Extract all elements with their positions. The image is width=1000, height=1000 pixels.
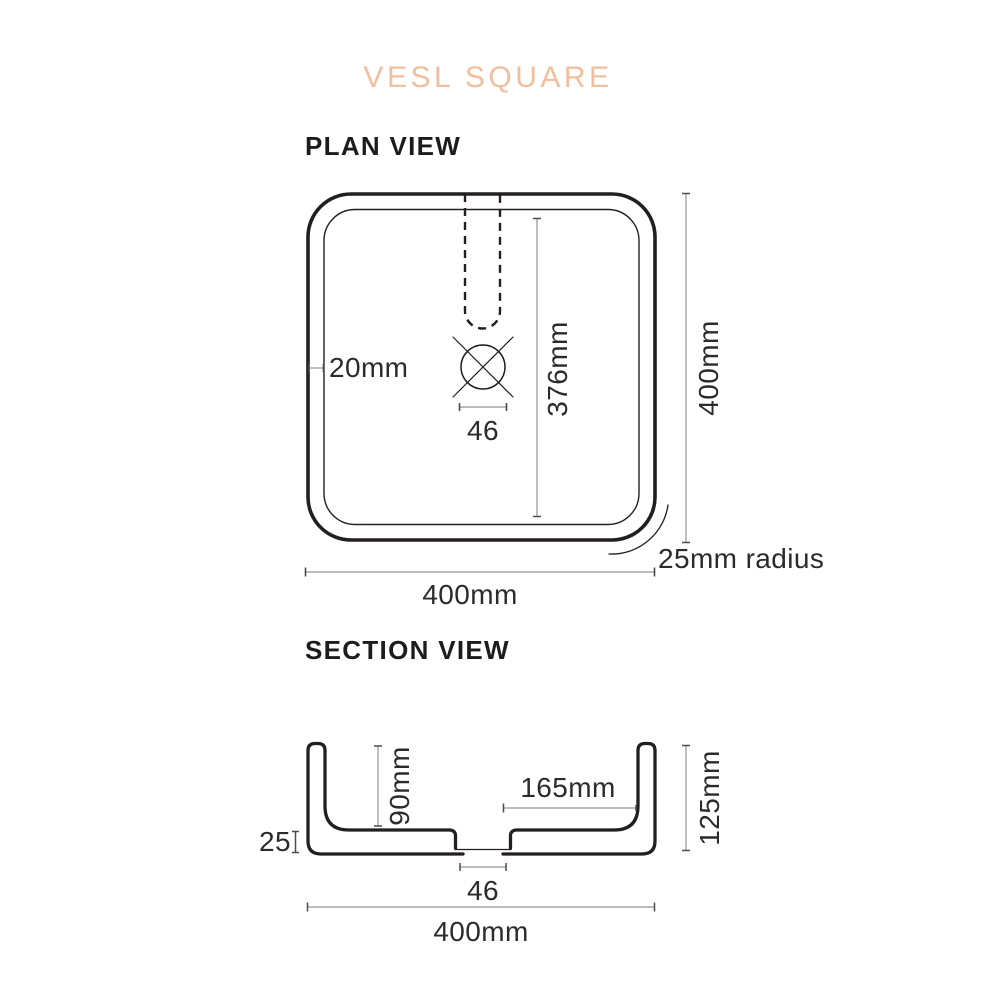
plan-view-heading: PLAN VIEW [305, 133, 461, 159]
dim-tick-base-thickness [292, 832, 299, 853]
dim-label-section-drain-width: 46 [467, 877, 499, 905]
dim-label-plan-height: 400mm [695, 320, 723, 415]
dim-label-rim-thickness: 20mm [329, 354, 408, 382]
dim-label-base-thickness: 25 [259, 828, 291, 856]
technical-drawing-page: VESL SQUARE PLAN VIEW 20mm 46 376mm 400m… [0, 0, 1000, 1000]
dim-label-section-width: 400mm [433, 918, 528, 946]
dim-label-inner-length: 376mm [544, 321, 572, 416]
dim-label-bowl-depth: 90mm [386, 746, 414, 825]
dim-label-plan-width: 400mm [422, 581, 517, 609]
linework-svg [0, 0, 1000, 1000]
dim-label-section-height: 125mm [696, 750, 724, 845]
dim-label-base-half-width: 165mm [520, 774, 615, 802]
dim-label-plan-drain-width: 46 [467, 417, 499, 445]
dim-label-corner-radius: 25mm radius [658, 545, 824, 573]
section-view-heading: SECTION VIEW [305, 637, 510, 663]
product-title: VESL SQUARE [363, 63, 612, 93]
